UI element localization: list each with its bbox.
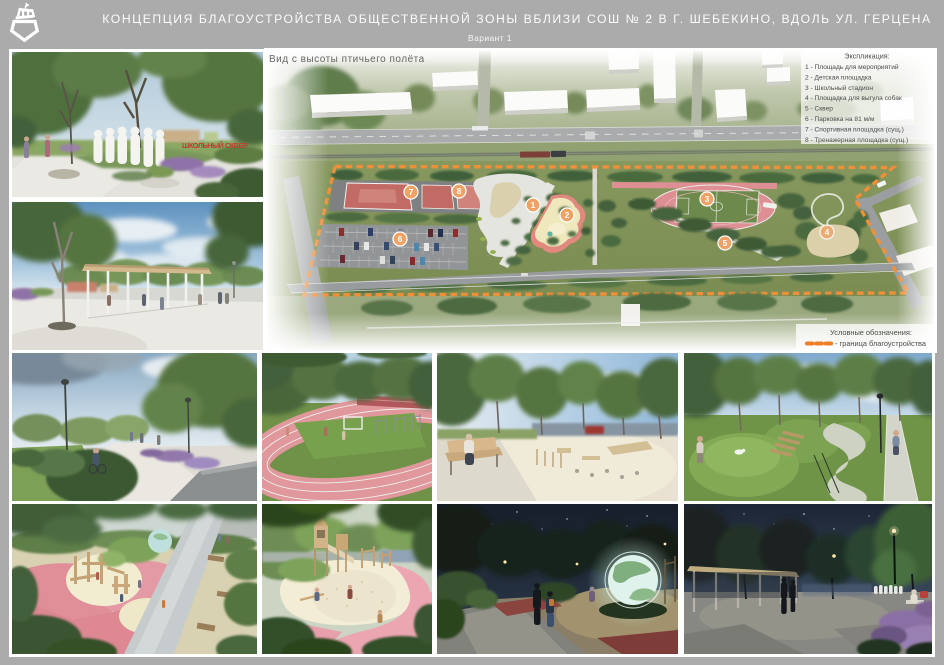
svg-text:Вид с высоты птичьего полёта: Вид с высоты птичьего полёта <box>269 54 425 65</box>
svg-text:7: 7 <box>409 187 414 197</box>
svg-text:4 - Площадка для выгула собак: 4 - Площадка для выгула собак <box>805 94 902 102</box>
svg-text:8 - Тренажерная площадка (сущ.: 8 - Тренажерная площадка (сущ.) <box>805 137 908 144</box>
svg-text:- граница благоустройства: - граница благоустройства <box>835 339 927 348</box>
svg-text:4: 4 <box>825 227 830 237</box>
svg-text:1 - Площадь для мероприятий: 1 - Площадь для мероприятий <box>805 63 899 71</box>
svg-text:7 - Спортивная площадка (сущ.): 7 - Спортивная площадка (сущ.) <box>805 126 904 133</box>
svg-text:3: 3 <box>705 194 710 204</box>
svg-text:8: 8 <box>457 186 462 196</box>
svg-text:ШКОЛЬНЫЙ СКВЕР: ШКОЛЬНЫЙ СКВЕР <box>182 141 248 150</box>
svg-text:6 - Парковка на 81 м/м: 6 - Парковка на 81 м/м <box>805 116 875 123</box>
svg-text:Экспликация:: Экспликация: <box>844 52 889 61</box>
svg-text:2: 2 <box>565 210 570 220</box>
svg-text:6: 6 <box>398 234 403 244</box>
svg-text:Условные обозначения:: Условные обозначения: <box>830 328 912 337</box>
svg-text:5: 5 <box>723 238 728 248</box>
svg-text:1: 1 <box>531 200 536 210</box>
svg-text:5 - Сквер: 5 - Сквер <box>805 106 833 113</box>
svg-text:3 - Школьный стадион: 3 - Школьный стадион <box>805 84 873 92</box>
svg-text:2 - Детская площадка: 2 - Детская площадка <box>805 74 872 81</box>
